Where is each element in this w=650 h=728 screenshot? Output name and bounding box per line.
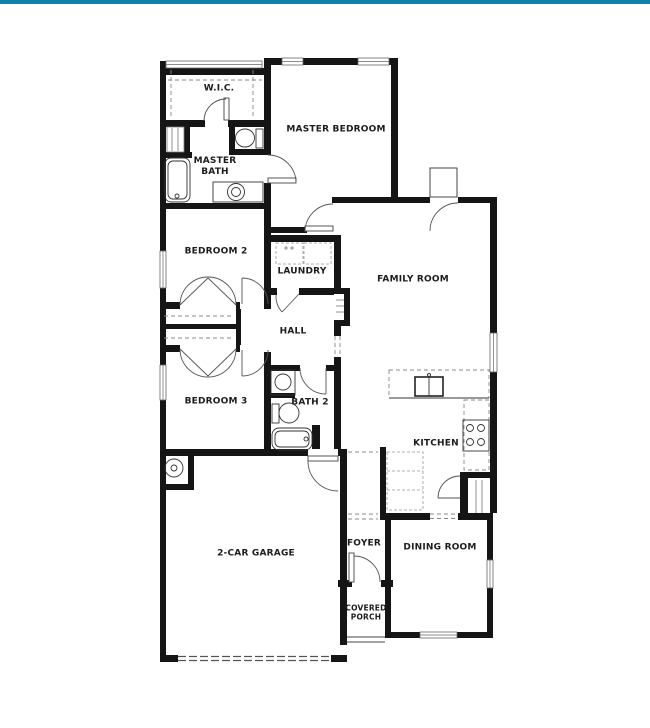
window [160, 365, 166, 400]
floor-plan-page: W.I.C. MASTER BATH MASTER BEDROOM BEDROO… [0, 0, 650, 728]
room-label-bedroom-3: BEDROOM 3 [185, 396, 248, 407]
garage-door [178, 657, 331, 661]
toilet-icon [236, 129, 264, 148]
floor-plan-drawing [0, 0, 650, 728]
hall-closets [164, 300, 344, 338]
room-label-covered-porch: COVERED PORCH [345, 604, 386, 623]
water-heater-icon [165, 459, 183, 477]
room-label-wic: W.I.C. [204, 83, 235, 94]
stove-icon [463, 420, 489, 451]
window [420, 632, 457, 638]
window [487, 560, 493, 588]
storage-closet-shelves [476, 480, 482, 513]
room-label-family-room: FAMILY ROOM [377, 274, 449, 285]
sink-icon [213, 182, 263, 202]
garage-entry-door [308, 456, 338, 491]
bath2-fixtures [271, 370, 312, 450]
window [166, 61, 262, 68]
room-label-dining-room: DINING ROOM [403, 542, 476, 553]
window [160, 251, 166, 288]
storage-closet-door [438, 476, 460, 498]
room-label-master-bath: MASTER BATH [194, 156, 237, 179]
walls [160, 58, 497, 662]
master-bedroom-door [305, 204, 333, 232]
bedroom2-closet-doors [180, 277, 236, 305]
pantry-shelves [387, 452, 423, 510]
linen-shelves [336, 300, 344, 312]
room-label-master-bedroom: MASTER BEDROOM [286, 124, 385, 135]
room-label-bath-2: BATH 2 [291, 397, 328, 408]
room-label-garage: 2-CAR GARAGE [217, 548, 295, 559]
bathtub-icon [272, 428, 312, 450]
room-label-hall: HALL [280, 326, 307, 337]
window [282, 58, 303, 65]
kitchen-sink-icon [415, 374, 443, 397]
master-bath-door [268, 155, 296, 183]
bathtub-icon [165, 158, 190, 202]
linen-shelves [167, 127, 184, 152]
room-label-kitchen: KITCHEN [413, 438, 459, 449]
window [358, 58, 389, 65]
laundry-door [276, 294, 299, 312]
family-room-exterior-door [430, 168, 458, 231]
cased-openings [335, 336, 458, 519]
room-label-bedroom-2: BEDROOM 2 [185, 246, 248, 257]
front-door [349, 553, 380, 582]
window [490, 333, 497, 372]
laundry-appliances [276, 243, 331, 264]
wic-door [204, 98, 229, 121]
bath2-door [300, 368, 326, 394]
porch-outline [347, 637, 385, 642]
room-label-foyer: FOYER [347, 538, 381, 549]
bedroom3-closet-doors [180, 349, 236, 377]
sink-icon [271, 370, 295, 395]
room-label-laundry: LAUNDRY [277, 266, 326, 277]
